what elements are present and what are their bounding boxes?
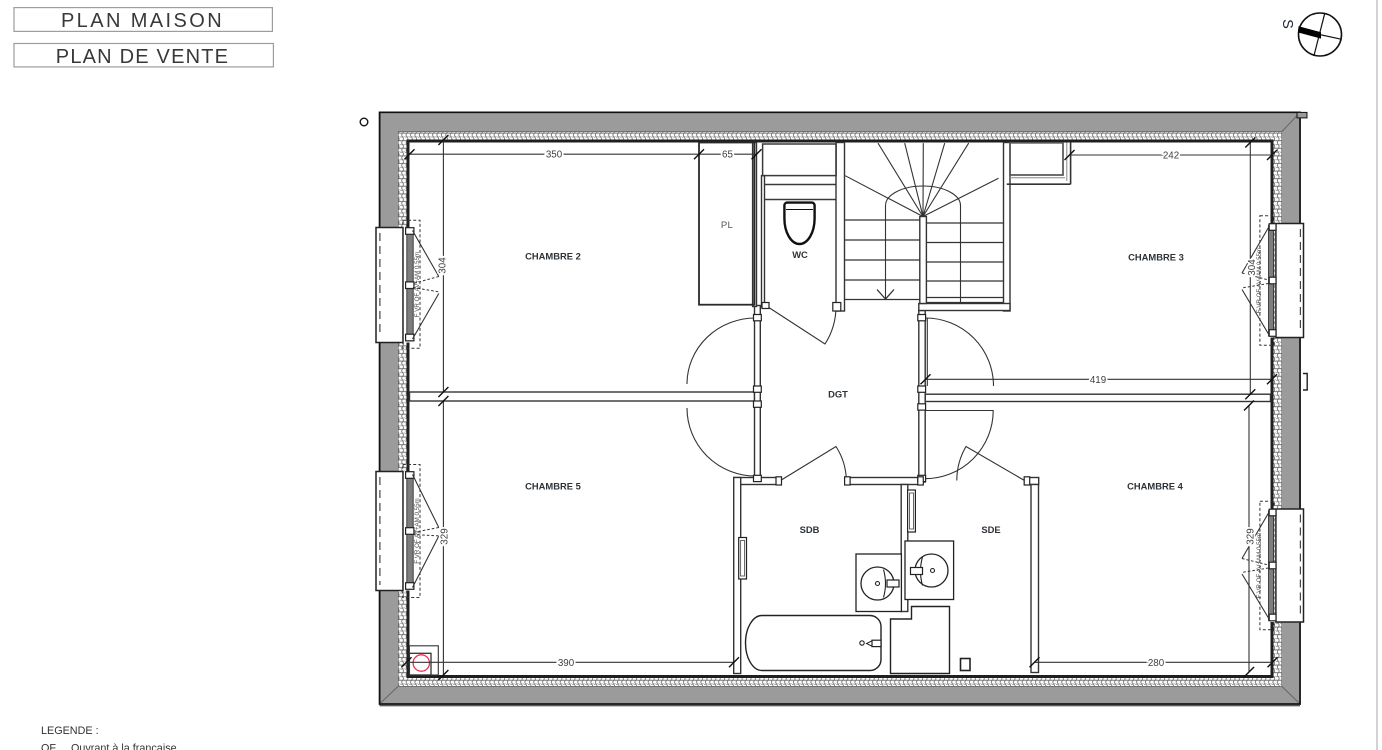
svg-text:419: 419 — [1090, 375, 1106, 386]
svg-text:304: 304 — [437, 257, 448, 274]
svg-text:350: 350 — [546, 150, 563, 161]
svg-text:F VR OF AV+AM 0.55m: F VR OF AV+AM 0.55m — [1256, 533, 1263, 598]
svg-text:SDE: SDE — [981, 524, 1000, 535]
svg-text:65: 65 — [722, 150, 733, 161]
svg-text:CHAMBRE 2: CHAMBRE 2 — [525, 251, 581, 262]
svg-text:DGT: DGT — [828, 389, 848, 400]
svg-text:SDB: SDB — [800, 524, 820, 535]
svg-text:F VR OF AV+AM 0.55m: F VR OF AV+AM 0.55m — [414, 498, 421, 563]
svg-text:PLAN DE VENTE: PLAN DE VENTE — [56, 46, 229, 68]
svg-text:CHAMBRE 4: CHAMBRE 4 — [1127, 481, 1184, 492]
svg-text:OF Ouvrant à la française: OF Ouvrant à la française — [41, 743, 177, 750]
svg-text:242: 242 — [1163, 151, 1179, 162]
svg-text:LEGENDE :: LEGENDE : — [41, 725, 99, 737]
svg-text:F VR OF AV+AM 0.55m: F VR OF AV+AM 0.55m — [1256, 248, 1263, 313]
svg-text:304: 304 — [1247, 259, 1258, 276]
svg-text:WC: WC — [792, 249, 808, 260]
svg-text:CHAMBRE 5: CHAMBRE 5 — [525, 481, 581, 492]
svg-text:S: S — [1279, 19, 1295, 29]
svg-text:329: 329 — [1246, 528, 1257, 544]
svg-text:390: 390 — [558, 658, 575, 669]
svg-text:329: 329 — [440, 528, 451, 544]
svg-text:PL: PL — [721, 220, 733, 231]
svg-text:PLAN MAISON: PLAN MAISON — [61, 10, 224, 32]
svg-text:280: 280 — [1148, 658, 1165, 669]
svg-text:F VR OF AV+AM 0.55m: F VR OF AV+AM 0.55m — [414, 252, 421, 317]
svg-text:CHAMBRE 3: CHAMBRE 3 — [1128, 252, 1184, 263]
